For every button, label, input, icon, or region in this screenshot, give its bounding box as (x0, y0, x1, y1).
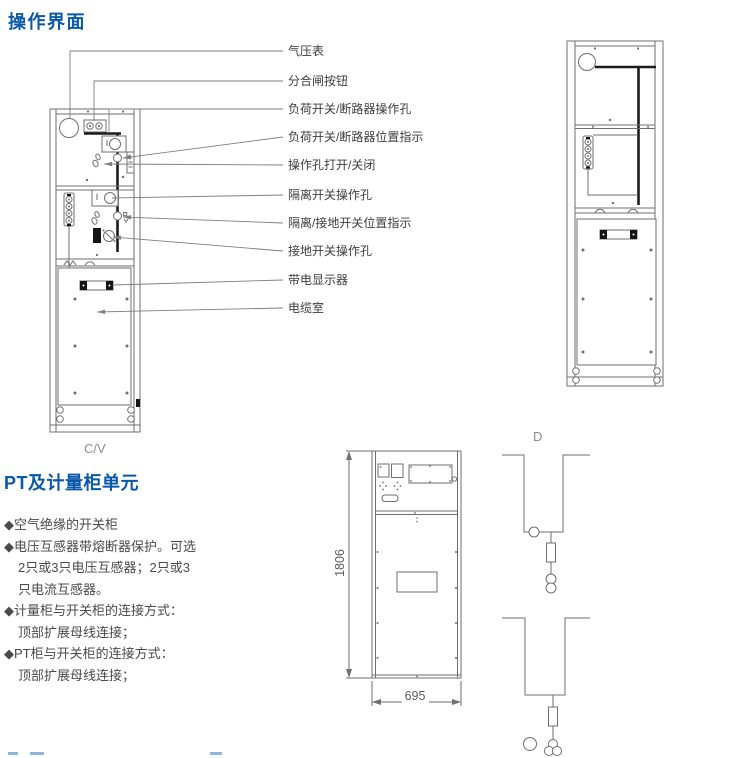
voltage-indicator-strip (64, 193, 74, 226)
section-title-operation: 操作界面 (8, 8, 86, 34)
bullet-line: ◆PT柜与开关柜的连接方式： (4, 643, 304, 665)
cable-compartment (58, 268, 131, 405)
live-display-unit (80, 281, 113, 290)
bullet-line: 顶部扩展母线连接； (4, 622, 304, 644)
bullet-line: 2只或3只电压互感器；2只或3 (4, 557, 304, 579)
single-line-diagram-upper (502, 455, 590, 593)
pt-cabinet-front-view (372, 451, 461, 678)
callout-pressure-gauge: 气压表 (288, 43, 324, 58)
operation-interface-figure: 气压表 分合闸按钮 负荷开关/断路器操作孔 负荷开关/断路器位置指示 操作孔打开… (0, 36, 737, 460)
pressure-gauge (60, 119, 79, 138)
dim-width-label: 695 (405, 689, 426, 703)
callout-live-display: 带电显示器 (288, 273, 348, 287)
pt-unit-figure: 1806 (330, 428, 737, 758)
callout-isolator-position: 隔离/接地开关位置指示 (288, 215, 411, 230)
right-cabinet-diagram (567, 41, 663, 386)
fuse-symbol (547, 543, 556, 562)
callout-isolator-op-hole: 隔离开关操作孔 (288, 187, 372, 202)
switch-operation-hole-panel (102, 136, 126, 152)
bullet-line: 顶部扩展母线连接； (4, 665, 304, 687)
callout-breaker-position: 负荷开关/断路器位置指示 (288, 129, 423, 144)
callout-open-close-button: 分合闸按钮 (288, 73, 348, 88)
bullet-line: ◆计量柜与开关柜的连接方式： (4, 600, 304, 622)
dim-height-label: 1806 (333, 549, 347, 577)
fuse-symbol (549, 707, 558, 726)
bullet-line: 只电流互感器。 (4, 579, 304, 601)
right-voltage-indicator-strip (583, 136, 593, 169)
callout-op-hole-open-close: 操作孔打开/关闭 (288, 157, 375, 172)
callout-labels: 气压表 分合闸按钮 负荷开关/断路器操作孔 负荷开关/断路器位置指示 操作孔打开… (288, 43, 423, 315)
callout-breaker-op-hole: 负荷开关/断路器操作孔 (288, 101, 411, 116)
height-dimension: 1806 (333, 451, 374, 678)
width-dimension: 695 (372, 681, 461, 706)
callout-cable-compartment: 电缆室 (288, 300, 324, 315)
cutoff-heading-fragment (0, 751, 737, 758)
pt-unit-description: ◆空气绝缘的开关柜 ◆电压互感器带熔断器保护。可选 2只或3只电压互感器；2只或… (4, 514, 304, 686)
catalog-page: 操作界面 (0, 0, 737, 758)
bullet-line: ◆电压互感器带熔断器保护。可选 (4, 536, 304, 558)
left-figure-label: C/V (84, 441, 106, 456)
right-figure-label: D (533, 429, 542, 444)
open-close-buttons (84, 120, 106, 132)
right-cable-compartment (577, 219, 656, 365)
section-title-pt-unit: PT及计量柜单元 (4, 469, 139, 495)
switch-symbol (529, 527, 539, 537)
callout-earthing-op-hole: 接地开关操作孔 (288, 243, 372, 258)
single-line-diagram-lower (502, 618, 590, 756)
bullet-line: ◆空气绝缘的开关柜 (4, 514, 304, 536)
